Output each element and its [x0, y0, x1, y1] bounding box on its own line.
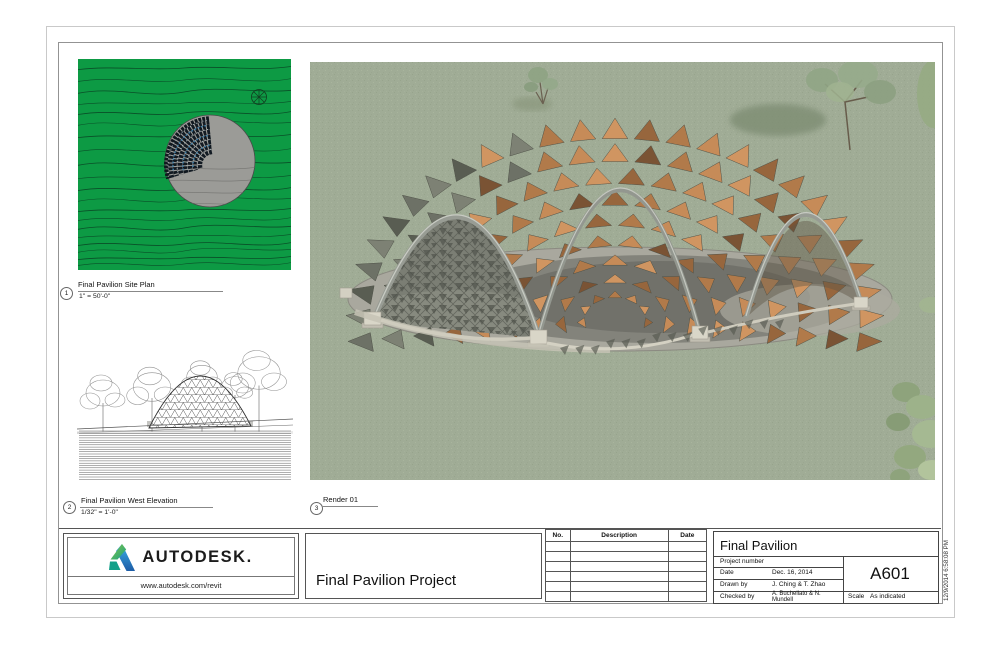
autodesk-wordmark: AUTODESK.: [142, 548, 252, 567]
west-elevation-title: Final Pavilion West Elevation: [81, 496, 178, 505]
drawn-by-row: Drawn by J. Ching & T. Zhao: [714, 579, 843, 591]
drawn-by-label: Drawn by: [720, 579, 747, 591]
revision-row: [546, 572, 707, 582]
site-plan-title-line: [78, 291, 223, 292]
revision-row: [546, 542, 707, 552]
scale-value: As indicated: [870, 591, 905, 603]
project-title-box: Final Pavilion Project: [305, 533, 542, 599]
revision-row: [546, 582, 707, 592]
revision-row: [546, 562, 707, 572]
checked-by-label: Checked by: [720, 591, 754, 603]
autodesk-url: www.autodesk.com/revit: [68, 576, 294, 594]
west-elevation-viewport[interactable]: [77, 335, 293, 483]
site-plan-label-number: 1: [60, 287, 73, 300]
checked-by-value: A. Buchellato & N. Mundell: [772, 592, 840, 603]
checked-by-row: Checked by A. Buchellato & N. Mundell: [714, 591, 843, 603]
elevation-dome-lattice: [149, 376, 251, 428]
date-value: Dec. 16, 2014: [772, 567, 812, 579]
drawn-by-value: J. Ching & T. Zhao: [772, 579, 825, 591]
elevation-ground-hatch: [79, 431, 291, 479]
revision-header-desc: Description: [570, 530, 668, 542]
autodesk-logo-inner-border: AUTODESK. www.autodesk.com/revit: [67, 537, 295, 595]
north-arrow-icon: [252, 90, 267, 105]
date-label: Date: [720, 567, 734, 579]
site-plan-scale: 1" = 50'-0": [79, 293, 110, 300]
revision-row: [546, 592, 707, 602]
sheet-number: A601: [843, 556, 937, 591]
tree-shadow: [730, 104, 826, 136]
titleblock-info: Final Pavilion Project number Date Dec. …: [713, 531, 939, 604]
scale-label: Scale: [848, 591, 864, 603]
sheet-page: 1 Final Pavilion Site Plan 1" = 50'-0" 2…: [0, 0, 1000, 647]
west-elevation-label-number: 2: [63, 501, 76, 514]
render-label-number: 3: [310, 502, 323, 515]
render-viewport[interactable]: [310, 62, 935, 480]
project-name: Final Pavilion: [714, 532, 938, 557]
revision-header-date: Date: [668, 530, 706, 542]
revision-header-no: No.: [546, 530, 571, 542]
tree-shadow: [512, 97, 552, 111]
render-title: Render 01: [323, 495, 358, 504]
west-elevation-scale: 1/32" = 1'-0": [81, 509, 118, 516]
titleband-top-line: [59, 528, 941, 529]
render-title-line: [322, 506, 378, 507]
autodesk-logo-box: AUTODESK. www.autodesk.com/revit: [63, 533, 299, 599]
site-plan-viewport[interactable]: [78, 59, 291, 270]
west-elevation-title-line: [80, 507, 213, 508]
revision-row: [546, 552, 707, 562]
project-title: Final Pavilion Project: [316, 572, 456, 589]
elevation-ground-streak: [77, 431, 293, 434]
print-timestamp: 12/9/2014 6:58:08 PM: [943, 540, 950, 601]
autodesk-logo-icon: [109, 544, 135, 571]
project-number-label: Project number: [720, 556, 764, 567]
scale-row: Scale As indicated: [843, 591, 937, 603]
revision-table: No. Description Date: [545, 529, 707, 602]
site-plan-title: Final Pavilion Site Plan: [78, 280, 155, 289]
